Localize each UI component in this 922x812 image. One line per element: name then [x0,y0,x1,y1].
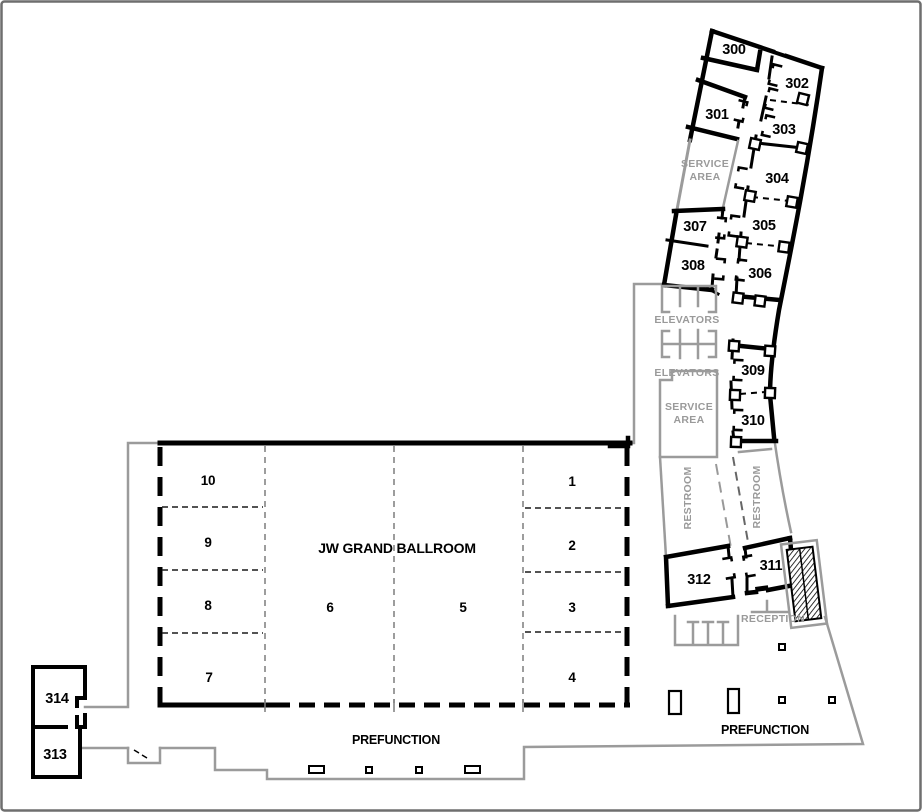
room-311-wall-left [745,548,747,593]
elevator-bank-3-icon [675,616,738,645]
room-301-wall-bottom [688,127,737,139]
room-307-label: 307 [683,219,707,235]
room-301-label: 301 [705,107,729,123]
elevator-bank-2-icon [662,330,716,358]
ballroom-section-5: 5 [459,600,467,615]
column-icon [465,766,480,773]
door-threshold-icon [765,346,776,357]
door-threshold-icon [736,236,747,247]
room-306-label: 306 [748,266,772,282]
room-305-label: 305 [752,218,776,234]
room-312-label: 312 [687,572,711,588]
ballroom-section-7: 7 [205,670,212,685]
restroom-zone: RESTROOM RESTROOM [682,457,763,548]
door-threshold-icon [749,138,761,150]
service-area-1-label-line1: SERVICE [681,158,729,170]
door-threshold-icon [765,388,775,398]
ballroom-dividers-vertical [265,446,523,703]
rooms-311-312-reception: 312 311 RECEPTION [666,538,827,645]
corridor-dashed-line-1 [716,464,731,548]
door-threshold-icon [732,292,743,303]
room-314-label: 314 [45,691,69,707]
room-wing: 300 301 302 303 304 305 306 307 308 309 … [664,31,822,447]
room-313-label: 313 [43,747,67,763]
prefunction-areas: PREFUNCTION PREFUNCTION [309,644,835,773]
ballroom-section-3: 3 [568,600,576,615]
column-icon [728,689,739,713]
room-312-wall-right [728,546,733,597]
service-area-1-label-line2: AREA [690,171,721,183]
room-304-label: 304 [765,171,789,187]
service-area-2-label-line2: AREA [674,414,705,426]
ballroom-section-4: 4 [568,670,576,685]
door-threshold-icon [754,295,765,306]
ballroom-section-2: 2 [568,538,575,553]
ballroom-title: JW GRAND BALLROOM [318,540,476,556]
reception-desk-icon [752,601,789,612]
door-threshold-icon [744,190,756,202]
room-303-label: 303 [772,122,796,138]
door-icon [734,100,748,122]
door-icon [714,259,725,280]
door-threshold-icon [796,142,808,154]
column-icon [309,766,324,773]
elevator-core: ELEVATORS ELEVATORS SERVICE AREA [654,286,719,457]
service-area-2-label-line1: SERVICE [665,401,713,413]
restroom-left-label: RESTROOM [682,466,694,529]
wing-wall-left-service [676,140,690,215]
rooms-309-310-divider [740,392,765,394]
room-308-wall-right [712,250,717,288]
elevators-1-label: ELEVATORS [654,314,719,326]
ballroom-section-8: 8 [204,598,212,613]
ballroom-section-10: 10 [201,473,216,488]
door-threshold-icon [731,437,741,447]
column-icon [669,691,681,714]
reception-label: RECEPTION [741,613,805,625]
door-icon [729,216,741,237]
door-threshold-icon [786,196,798,208]
elevators-2-label: ELEVATORS [654,367,719,379]
wing-wall-left-lower [664,215,676,285]
ballroom: JW GRAND BALLROOM 1 2 3 4 5 6 7 8 9 10 [160,443,630,712]
prefunction-left-label: PREFUNCTION [352,733,440,747]
column-icon [829,697,835,703]
floor-plan-svg: JW GRAND BALLROOM 1 2 3 4 5 6 7 8 9 10 3… [0,0,922,812]
floor-plan: JW GRAND BALLROOM 1 2 3 4 5 6 7 8 9 10 3… [0,0,922,812]
service-area-1-boundary [722,141,738,212]
room-309-label: 309 [741,363,765,379]
room-307-wall-top [674,209,723,211]
room-310-label: 310 [741,413,765,429]
column-icon [779,644,785,650]
ballroom-section-9: 9 [204,535,211,550]
ballroom-section-1: 1 [568,474,576,489]
door-threshold-icon [797,93,809,105]
room-300-label: 300 [722,42,746,58]
rooms-303-304-divider [757,143,802,148]
door-icon [715,218,726,239]
corridor-dashed-line-2 [733,457,748,542]
column-icon [366,767,372,773]
door-threshold-icon [778,241,789,252]
door-icon [722,557,734,578]
door-icon [735,167,747,188]
room-302-label: 302 [785,76,809,92]
ballroom-dividers-left-column [162,507,263,633]
door-threshold-icon [730,390,740,400]
restroom-right-label: RESTROOM [751,465,763,528]
room-301-wall-top [698,80,745,97]
balcony-door-notch-1 [759,32,771,43]
ballroom-section-6: 6 [326,600,334,615]
rooms-304-305-divider [752,197,790,201]
rooms-313-314: 314 313 [33,667,85,777]
room-311-label: 311 [760,558,783,574]
vestibule-door-swing [134,750,147,758]
prefunction-right-label: PREFUNCTION [721,723,809,737]
column-icon [779,697,785,703]
door-threshold-icon [729,341,740,352]
column-icon [416,767,422,773]
room-308-label: 308 [681,258,705,274]
